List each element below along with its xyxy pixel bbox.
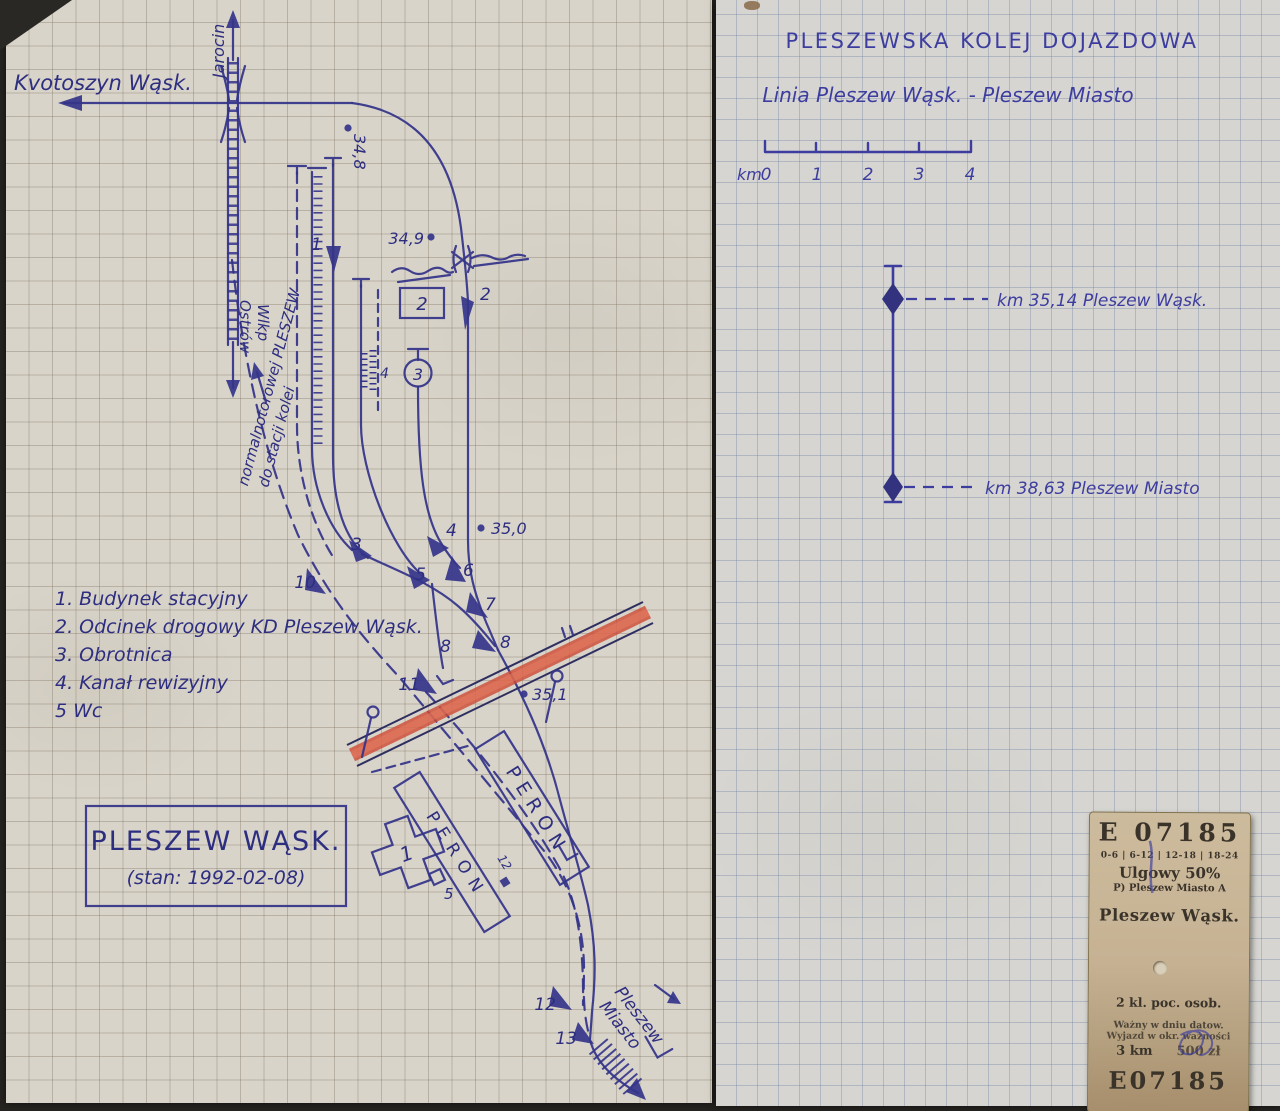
ostrow-label-2: Wlkp	[254, 304, 272, 341]
arrow-down-icon	[226, 380, 240, 398]
building-2-label: 2	[416, 294, 427, 315]
paper-tear-mark	[744, 1, 760, 10]
km-post-35-1: 35,1	[532, 685, 568, 704]
pit-label: 4	[380, 366, 389, 382]
left-graph-paper-page: 2 3 4 PERON PERON	[6, 0, 712, 1103]
page-subtitle: Linia Pleszew Wąsk. - Pleszew Miasto	[762, 83, 1133, 107]
scale-tick-1: 1	[812, 165, 823, 185]
page-title: PLESZEWSKA KOLEJ DOJAZDOWA	[785, 29, 1198, 53]
km-unit-label: km	[737, 165, 762, 184]
station-label-pleszew-miasto: km 38,63 Pleszew Miasto	[985, 479, 1200, 499]
track-8-label: 8	[440, 637, 451, 657]
scale-tick-0: 0	[761, 165, 772, 185]
switch-10: 10	[294, 573, 316, 593]
station-diamond-pleszew-miasto	[883, 472, 903, 502]
scale-tick-3: 3	[914, 165, 925, 185]
inspection-pit: 4	[364, 350, 389, 392]
stream-crossing	[392, 246, 528, 282]
legend-item-5: 5 Wc	[55, 700, 103, 722]
km-signal-12: 12	[494, 852, 514, 887]
edmondson-ticket: E 07185 0-6 | 6-12 | 12-18 | 18-24 Ulgow…	[1087, 811, 1251, 1111]
arrow-up-icon	[226, 10, 240, 28]
switch-2: 2	[480, 285, 491, 305]
platform-right: PERON	[475, 731, 589, 885]
station-state-date: (stan: 1992-02-08)	[127, 867, 306, 889]
dual-gauge-dashed-track	[232, 260, 590, 1038]
line-to-krotoszyn	[58, 95, 352, 111]
km-scale-bar: km 0 1 2 3 4	[737, 141, 975, 185]
legend-item-4: 4. Kanał rewizyjny	[55, 672, 229, 694]
scale-tick-2: 2	[863, 165, 874, 185]
scale-tick-4: 4	[965, 165, 976, 185]
signal-posts	[362, 671, 563, 758]
station-name-box: PLESZEW WĄSK. (stan: 1992-02-08)	[86, 806, 346, 906]
route-line-diagram: km 35,14 Pleszew Wąsk. km 38,63 Pleszew …	[882, 266, 1207, 502]
legend-item-3: 3. Obrotnica	[55, 644, 172, 666]
station-building-label: 1	[396, 840, 416, 867]
switch-12: 12	[534, 995, 556, 1015]
station-diamond-pleszew-wask	[882, 283, 904, 315]
ticket-ink-marks	[1088, 812, 1250, 1111]
switch-8: 8	[500, 633, 511, 653]
svg-text:12: 12	[494, 852, 514, 872]
wc-label: 5	[444, 885, 454, 903]
jarocin-label: Jarocin	[209, 24, 228, 81]
km-post-34-8: 34,8	[350, 134, 369, 170]
boundary-dash-line	[372, 746, 468, 772]
station-label-pleszew-wask: km 35,14 Pleszew Wąsk.	[997, 291, 1207, 311]
track-schematic-drawing: 2 3 4 PERON PERON	[6, 0, 712, 1103]
turntable-label: 3	[413, 365, 423, 384]
legend-item-2: 2. Odcinek drogowy KD Pleszew Wąsk.	[55, 616, 423, 638]
switch-numbers: 1 2 3 4 5 6 7 8 8 10 11 12 13	[294, 235, 577, 1049]
switch-11: 11	[398, 675, 420, 695]
legend: 1. Budynek stacyjny 2. Odcinek drogowy K…	[55, 588, 423, 722]
switch-3: 3	[351, 535, 362, 555]
turntable: 3	[405, 349, 432, 387]
building-2-box: 2	[400, 288, 444, 318]
photo-of-hand-drawn-railway-diagram: 2 3 4 PERON PERON	[0, 0, 1280, 1111]
km-post-34-9: 34,9	[388, 229, 424, 248]
switch-7: 7	[485, 595, 496, 615]
switch-1: 1	[311, 235, 322, 255]
arrow-left-icon	[58, 95, 82, 111]
wc-building: 5	[429, 869, 454, 903]
switch-5: 5	[415, 565, 426, 585]
switch-13: 13	[555, 1029, 577, 1049]
krotoszyn-label: Kvotoszyn Wąsk.	[14, 71, 192, 95]
switch-6: 6	[463, 561, 474, 581]
switch-4: 4	[446, 521, 457, 541]
ostrow-label-1: Ostrów	[236, 300, 254, 354]
station-name: PLESZEW WĄSK.	[91, 826, 342, 857]
km-post-35-0: 35,0	[491, 519, 527, 538]
legend-item-1: 1. Budynek stacyjny	[55, 588, 248, 610]
